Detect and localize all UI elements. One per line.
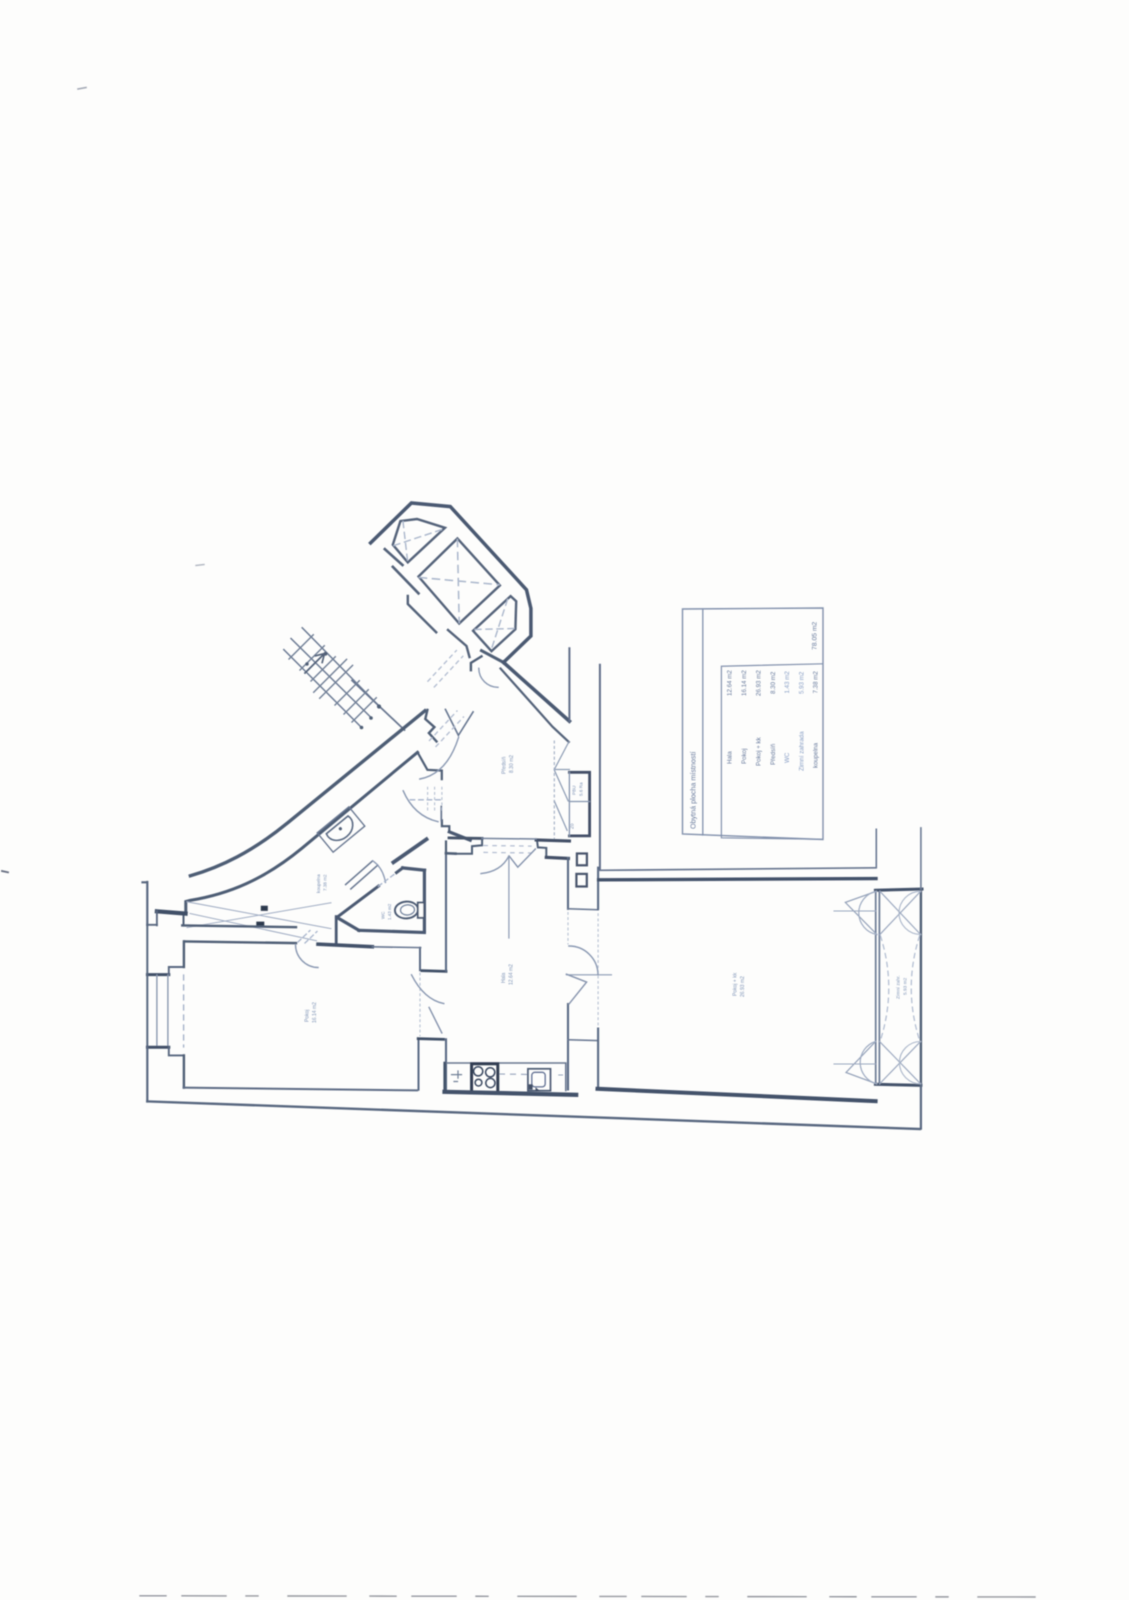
svg-text:12.64 m2: 12.64 m2 — [509, 964, 515, 985]
svg-text:8.30 m2: 8.30 m2 — [770, 671, 777, 694]
svg-text:PBU: PBU — [572, 786, 577, 795]
svg-text:koupelna: koupelna — [813, 742, 820, 768]
svg-text:Pokoj: Pokoj — [305, 1009, 311, 1022]
svg-text:Hala: Hala — [727, 751, 734, 764]
svg-text:Zimní zahrada: Zimní zahrada — [799, 731, 806, 771]
svg-text:5.93 m2: 5.93 m2 — [799, 671, 806, 694]
svg-text:2o: 2o — [570, 823, 576, 829]
svg-text:Předsíň: Předsíň — [770, 743, 777, 765]
svg-text:5.6 Ra: 5.6 Ra — [579, 782, 584, 796]
svg-text:WC: WC — [381, 911, 386, 919]
svg-text:5.93 m2: 5.93 m2 — [903, 977, 909, 995]
svg-text:8.30 m2: 8.30 m2 — [509, 755, 515, 773]
svg-text:Pokoj + kk: Pokoj + kk — [756, 736, 763, 766]
svg-text:78.05 m2: 78.05 m2 — [812, 621, 819, 650]
svg-text:Obytná plocha místností: Obytná plocha místností — [689, 751, 698, 829]
svg-text:Pokoj: Pokoj — [741, 749, 748, 764]
svg-text:16.14 m2: 16.14 m2 — [741, 670, 748, 696]
svg-text:1.43 m2: 1.43 m2 — [387, 903, 392, 920]
svg-text:Hala: Hala — [501, 972, 507, 983]
svg-text:26.93 m2: 26.93 m2 — [756, 670, 763, 696]
svg-text:16.14 m2: 16.14 m2 — [312, 1002, 318, 1023]
svg-text:1.43 m2: 1.43 m2 — [784, 671, 791, 694]
svg-text:7.38 m2: 7.38 m2 — [813, 671, 820, 694]
svg-text:Předsíň: Předsíň — [502, 757, 508, 774]
svg-text:7.38 m2: 7.38 m2 — [323, 874, 328, 891]
svg-text:Zimní zahr.: Zimní zahr. — [896, 975, 902, 999]
svg-text:WC: WC — [784, 752, 791, 763]
svg-text:koupelna: koupelna — [316, 874, 321, 893]
svg-text:Pokoj + kk: Pokoj + kk — [733, 972, 739, 996]
svg-text:26.93 m2: 26.93 m2 — [740, 976, 746, 997]
svg-text:12.64 m2: 12.64 m2 — [727, 670, 734, 696]
